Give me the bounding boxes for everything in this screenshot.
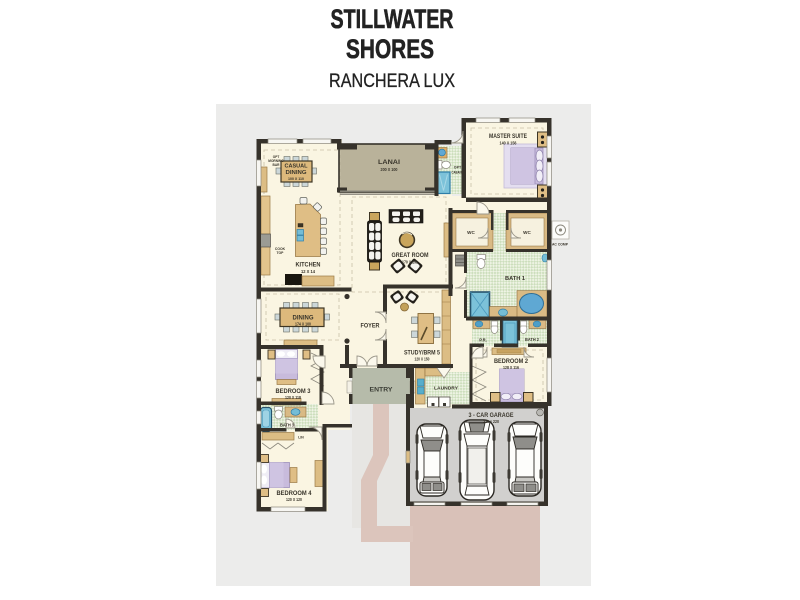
svg-text:WC: WC	[523, 230, 531, 235]
svg-text:170 X 191: 170 X 191	[402, 260, 419, 265]
svg-text:LIN: LIN	[298, 436, 304, 440]
svg-text:TOP: TOP	[277, 251, 285, 255]
svg-text:BATH 1: BATH 1	[505, 276, 526, 282]
svg-text:LAUNDRY: LAUNDRY	[434, 386, 458, 391]
svg-text:100 X 110: 100 X 110	[288, 176, 305, 181]
svg-text:200 X 100: 200 X 100	[381, 167, 399, 172]
svg-text:MASTER SUITE: MASTER SUITE	[489, 133, 527, 140]
svg-text:KITCHEN: KITCHEN	[296, 262, 321, 269]
svg-text:FOYER: FOYER	[361, 323, 380, 330]
svg-text:LANAI: LANAI	[378, 159, 400, 166]
svg-text:140 X 156: 140 X 156	[500, 141, 518, 146]
svg-text:SHORES: SHORES	[346, 34, 434, 64]
svg-text:120 X 150: 120 X 150	[415, 357, 431, 362]
svg-text:BAR: BAR	[273, 163, 281, 167]
svg-text:220 x 220: 220 x 220	[483, 419, 500, 424]
svg-text:CABANA: CABANA	[452, 171, 464, 175]
svg-text:WC: WC	[467, 230, 475, 235]
svg-text:RANCHERA LUX: RANCHERA LUX	[329, 71, 455, 92]
svg-text:3 - CAR GARAGE: 3 - CAR GARAGE	[469, 412, 514, 419]
svg-text:P.R.: P.R.	[479, 338, 487, 343]
svg-text:STILLWATER: STILLWATER	[331, 4, 454, 34]
svg-text:BATH 3: BATH 3	[280, 423, 295, 428]
svg-text:120 X 120: 120 X 120	[286, 497, 303, 502]
svg-text:AC COMP: AC COMP	[552, 243, 569, 247]
svg-text:CASUAL: CASUAL	[285, 164, 308, 170]
svg-text:BATH 2: BATH 2	[525, 337, 540, 342]
svg-text:DINING: DINING	[293, 315, 314, 322]
svg-text:128 X 116: 128 X 116	[503, 365, 520, 370]
svg-text:OPT: OPT	[454, 166, 462, 170]
svg-text:174 X 100: 174 X 100	[295, 322, 312, 327]
svg-text:12 X 14: 12 X 14	[301, 269, 316, 274]
svg-text:GREAT ROOM: GREAT ROOM	[392, 252, 429, 259]
svg-text:ENTRY: ENTRY	[370, 387, 394, 394]
svg-text:120 X 118: 120 X 118	[285, 395, 302, 400]
